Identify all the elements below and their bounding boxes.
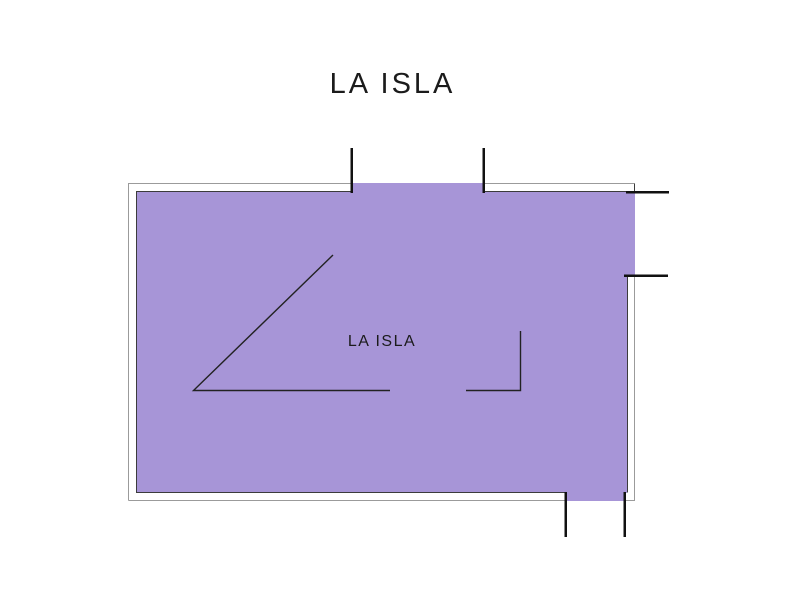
floor-plan-canvas — [0, 0, 785, 605]
room-fill-top-opening — [352, 183, 484, 191]
room-fill-bottom-opening — [565, 493, 624, 501]
room-label: LA ISLA — [321, 333, 443, 351]
room-fill-right-opening — [627, 191, 635, 275]
floor-plan-page: LA ISLA — [0, 0, 785, 605]
